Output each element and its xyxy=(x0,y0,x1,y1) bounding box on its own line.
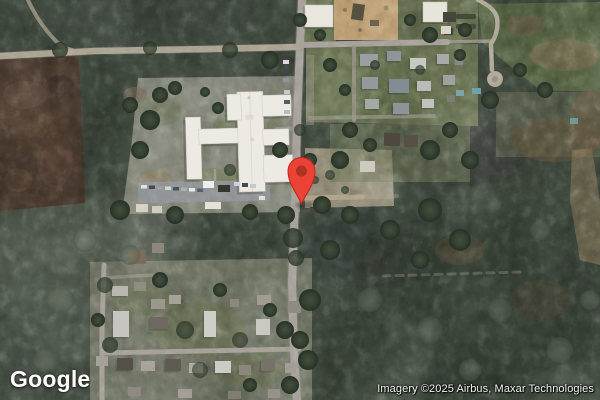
satellite-imagery xyxy=(0,0,600,400)
google-logo[interactable]: Google xyxy=(10,366,90,393)
map-canvas[interactable]: Google Imagery ©2025 Airbus, Maxar Techn… xyxy=(0,0,600,400)
pin-dot xyxy=(296,166,307,177)
imagery-attribution: Imagery ©2025 Airbus, Maxar Technologies xyxy=(377,383,594,395)
field xyxy=(0,56,86,212)
